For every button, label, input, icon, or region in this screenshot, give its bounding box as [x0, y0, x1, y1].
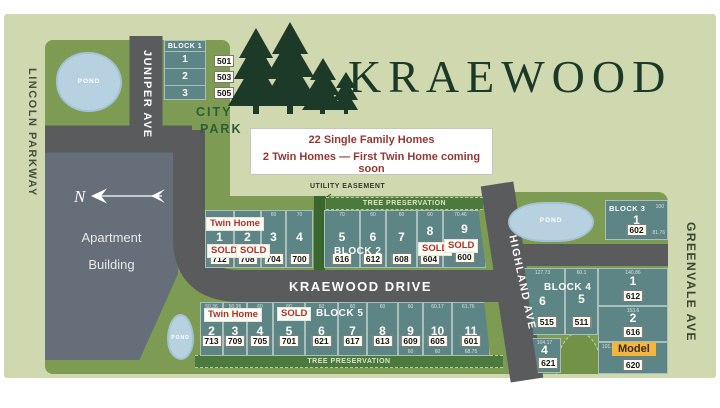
- lot-address: 705: [250, 335, 270, 347]
- lot-704[interactable]: 60 3 704: [261, 210, 286, 268]
- lot-dim: 60.1: [566, 270, 597, 276]
- lot-address: 602: [626, 224, 646, 236]
- lot-dim: 70: [325, 212, 359, 218]
- development-title: KRAEWOOD: [348, 50, 672, 103]
- lot-700[interactable]: 70 4 700: [286, 210, 313, 268]
- lot-604[interactable]: 60 8 604: [417, 210, 443, 268]
- lot-dim: 70: [287, 212, 312, 218]
- lot-608[interactable]: 60 7 608: [386, 210, 417, 268]
- lot-number: 9: [444, 223, 485, 236]
- block2-label: BLOCK 2: [334, 246, 381, 257]
- lot-address: 621: [311, 335, 331, 347]
- site-plan: Apartment Building POND POND POND TREE P…: [0, 0, 720, 408]
- lot-dim: 60: [387, 212, 416, 218]
- lot-address: 617: [342, 335, 362, 347]
- lot-number: 1: [206, 231, 233, 244]
- lot-address: 515: [537, 316, 557, 328]
- pond-small: POND: [167, 314, 194, 360]
- lot-616-b4[interactable]: 153.6 2 616: [598, 306, 668, 342]
- lot-dim: 60: [399, 349, 422, 355]
- info-box: 22 Single Family Homes 2 Twin Homes — Fi…: [250, 128, 493, 175]
- lot-616[interactable]: 70 5 616: [324, 210, 360, 268]
- lot-number: 8: [418, 225, 442, 238]
- lot-dim: 127.73: [521, 270, 564, 276]
- lot-number: 5: [325, 231, 359, 244]
- block5-label: BLOCK 5: [316, 308, 363, 319]
- lot-address: 621: [538, 357, 558, 369]
- lot-number: 5: [566, 293, 597, 306]
- lot-dim: 100: [656, 204, 664, 210]
- sold-sign-600: SOLD: [444, 239, 478, 253]
- lot-address: 605: [427, 335, 447, 347]
- lot-address: 700: [289, 253, 309, 265]
- pond-label: POND: [540, 217, 563, 224]
- lot-612[interactable]: 60 6 612: [360, 210, 386, 268]
- lot-dim: 70.46: [444, 212, 477, 218]
- lot-address: 609: [400, 335, 420, 347]
- city-park-label-2: PARK: [200, 122, 243, 136]
- tree-preservation-label: TREE PRESERVATION: [307, 358, 390, 365]
- lot-613[interactable]: 60 8 613: [367, 302, 398, 356]
- pond-northwest: POND: [56, 52, 122, 112]
- lot-dim: 60: [399, 304, 422, 310]
- sold-sign-708: SOLD: [236, 244, 270, 258]
- lot-609[interactable]: 60 9 609 60: [398, 302, 423, 356]
- info-line-1: 22 Single Family Homes: [251, 134, 492, 146]
- lot-number: 1: [165, 54, 205, 65]
- lot-number: 2: [235, 231, 260, 244]
- lot-address: 620: [623, 359, 643, 371]
- lot-dim: 60: [418, 212, 442, 218]
- lot-address: 608: [391, 253, 411, 265]
- lot-601[interactable]: 61.76 11 601 68.75: [452, 302, 490, 356]
- pond-east: POND: [508, 202, 594, 242]
- tree-preservation-south: TREE PRESERVATION: [195, 355, 503, 368]
- lot-number: 6: [361, 231, 385, 244]
- block1-label: BLOCK 1: [165, 43, 205, 50]
- north-label-glyph: N: [73, 187, 87, 206]
- street-label-greenvale-ave: GREENVALE AVE: [684, 222, 698, 342]
- pond-label: POND: [171, 335, 189, 341]
- pine-trees-logo: [226, 22, 358, 114]
- lot-612-b4[interactable]: 140.86 1 612: [598, 268, 668, 306]
- street-label-kraewood-drive: KRAEWOOD DRIVE: [248, 279, 473, 294]
- twin-home-sign-block2: Twin Home: [206, 217, 264, 231]
- lot-dim: 60: [361, 212, 385, 218]
- lot-address: 709: [225, 335, 245, 347]
- north-arrow: N: [70, 183, 170, 209]
- twin-home-sign-block5: Twin Home: [204, 308, 262, 322]
- lot-address: 713: [201, 335, 221, 347]
- lot-605[interactable]: 60.17 10 605 60: [423, 302, 452, 356]
- lot-number: 7: [387, 231, 416, 244]
- lot-number: 2: [599, 312, 667, 325]
- lot-number: 4: [287, 231, 312, 244]
- info-line-2: 2 Twin Homes — First Twin Home coming so…: [251, 151, 492, 175]
- lot-address: 616: [623, 326, 643, 338]
- tree-preservation-label: TREE PRESERVATION: [363, 200, 446, 207]
- lot-511[interactable]: 60.1 5 511: [565, 268, 598, 335]
- pond-label: POND: [78, 78, 101, 85]
- lot-dim: 60: [368, 304, 397, 310]
- block4-label: BLOCK 4: [544, 282, 591, 293]
- model-home-sign: Model: [612, 342, 656, 356]
- lot-dim: 60: [262, 212, 285, 218]
- lot-address: 511: [572, 316, 592, 328]
- block1-parcel[interactable]: BLOCK 1 1 2 3: [164, 40, 206, 100]
- lot-address: 601: [461, 335, 481, 347]
- street-label-juniper-ave: JUNIPER AVE: [141, 50, 153, 139]
- block3-label: BLOCK 3: [609, 204, 645, 213]
- lot-address: 613: [372, 335, 392, 347]
- lot-dim: 68.75: [453, 349, 489, 355]
- lot-dim: 61.76: [453, 304, 484, 310]
- lot-number: 3: [262, 231, 285, 244]
- sold-sign-701: SOLD: [277, 307, 311, 321]
- lot-address: 701: [279, 335, 299, 347]
- lot-dim: 60.17: [424, 304, 451, 310]
- tree-preservation-north: TREE PRESERVATION: [326, 197, 483, 210]
- lot-address: 612: [623, 290, 643, 302]
- lot-dim: 60: [424, 349, 451, 355]
- lot-dim: 81.76: [652, 230, 665, 236]
- utility-easement-label: UTILITY EASEMENT: [310, 183, 385, 190]
- lot-602[interactable]: BLOCK 3 100 1 602 81.76: [605, 200, 668, 240]
- lot-number: 1: [599, 275, 667, 288]
- lot-number: 2: [165, 71, 205, 82]
- street-label-lincoln-parkway: LINCOLN PARKWAY: [26, 68, 38, 197]
- lot-number: 3: [165, 88, 205, 99]
